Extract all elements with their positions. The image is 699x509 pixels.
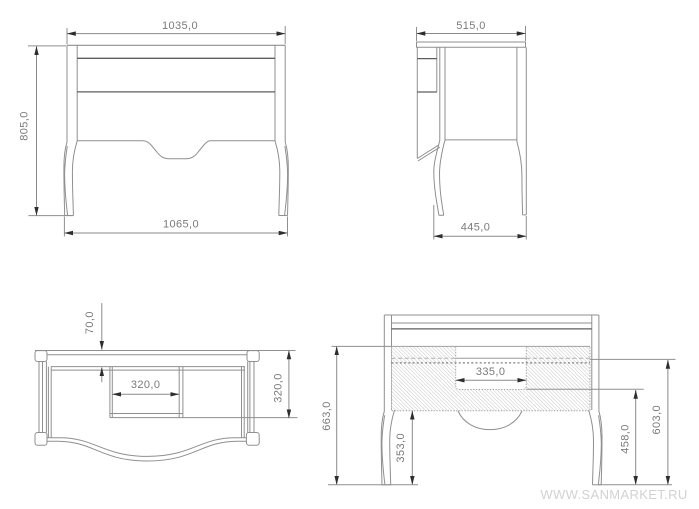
svg-text:320,0: 320,0 <box>131 379 161 391</box>
svg-text:320,0: 320,0 <box>273 373 285 403</box>
svg-text:603,0: 603,0 <box>651 405 663 435</box>
svg-text:1065,0: 1065,0 <box>163 219 199 231</box>
svg-text:458,0: 458,0 <box>619 424 631 454</box>
svg-text:1035,0: 1035,0 <box>162 20 198 32</box>
svg-text:WWW.SANMARKET.RU: WWW.SANMARKET.RU <box>540 487 687 502</box>
svg-text:515,0: 515,0 <box>456 20 486 32</box>
svg-text:70,0: 70,0 <box>84 311 96 334</box>
svg-text:445,0: 445,0 <box>461 222 491 234</box>
svg-text:353,0: 353,0 <box>395 433 407 463</box>
svg-text:805,0: 805,0 <box>19 111 31 141</box>
svg-text:663,0: 663,0 <box>321 401 333 431</box>
svg-text:335,0: 335,0 <box>476 366 506 378</box>
